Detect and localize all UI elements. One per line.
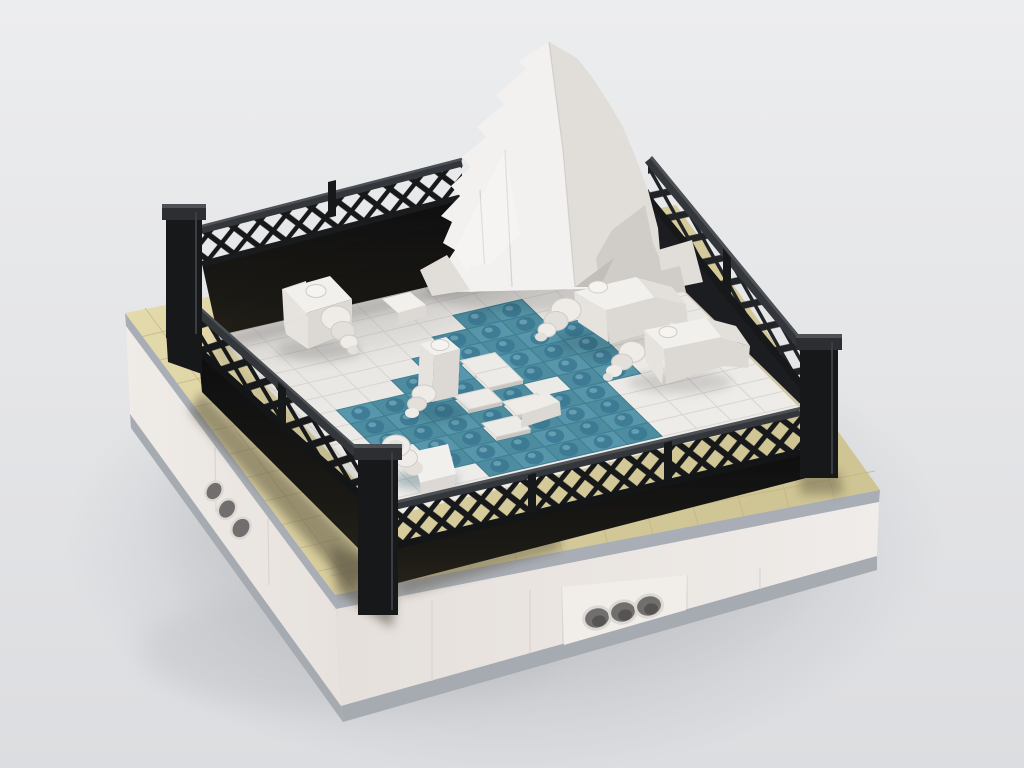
seal-stud <box>659 327 677 338</box>
seal-stud <box>431 340 449 351</box>
water-stud <box>566 407 585 421</box>
water-stud-highlight <box>589 388 597 393</box>
water-stud-highlight <box>575 374 583 379</box>
corner-post-east <box>796 334 842 478</box>
water-stud <box>462 431 481 445</box>
lego-scene-svg <box>0 0 1024 768</box>
water-stud <box>545 429 564 443</box>
water-stud <box>558 358 577 372</box>
water-stud <box>386 398 405 412</box>
water-stud-highlight <box>458 385 466 390</box>
water-stud <box>559 443 578 457</box>
water-stud-highlight <box>528 453 536 458</box>
water-stud <box>351 406 370 420</box>
water-stud-highlight <box>527 369 535 374</box>
water-stud-highlight <box>547 347 555 352</box>
seal-stud <box>306 285 326 298</box>
water-stud-highlight <box>485 327 493 332</box>
corner-post-west <box>162 204 206 374</box>
water-stud <box>510 352 529 366</box>
water-stud <box>600 399 619 413</box>
water-stud-highlight <box>409 379 417 384</box>
water-stud-highlight <box>479 447 487 452</box>
fence-divider <box>664 441 672 481</box>
water-stud <box>586 385 605 399</box>
water-stud-highlight <box>506 390 514 395</box>
water-stud <box>594 435 613 449</box>
water-stud-highlight <box>450 335 458 340</box>
water-stud-highlight <box>597 437 605 442</box>
fence-divider <box>528 473 536 513</box>
water-stud <box>580 421 599 435</box>
corner-post-south <box>354 444 402 615</box>
water-stud-highlight <box>389 401 397 406</box>
water-stud <box>482 325 501 339</box>
water-stud <box>490 459 509 473</box>
lego-render-figure <box>0 0 1024 768</box>
water-stud-highlight <box>562 445 570 450</box>
seal-stud <box>589 281 608 293</box>
water-stud-highlight <box>519 319 527 324</box>
water-stud <box>476 445 495 459</box>
fence-divider <box>278 382 286 425</box>
water-stud <box>614 413 633 427</box>
fence-divider <box>328 180 336 218</box>
water-stud <box>544 344 563 358</box>
water-stud <box>628 427 647 441</box>
water-stud <box>496 339 515 353</box>
water-stud <box>525 451 544 465</box>
water-stud-highlight <box>603 402 611 407</box>
water-stud-highlight <box>368 422 376 427</box>
water-stud-highlight <box>451 420 459 425</box>
water-stud-highlight <box>561 361 569 366</box>
water-stud-highlight <box>569 410 577 415</box>
water-stud-highlight <box>465 434 473 439</box>
water-stud <box>414 425 433 439</box>
water-stud-highlight <box>568 325 576 330</box>
water-stud-highlight <box>548 431 556 436</box>
water-stud-highlight <box>431 442 439 447</box>
water-stud-highlight <box>464 349 472 354</box>
water-stud <box>516 317 535 331</box>
water-stud-highlight <box>354 409 362 414</box>
water-stud-highlight <box>493 461 501 466</box>
water-stud <box>524 366 543 380</box>
water-stud-highlight <box>417 428 425 433</box>
water-stud-highlight <box>617 415 625 420</box>
water-stud-highlight <box>631 429 639 434</box>
water-stud <box>511 437 530 451</box>
water-stud <box>572 372 591 386</box>
water-stud <box>365 420 384 434</box>
water-stud-highlight <box>486 412 494 417</box>
water-stud-highlight <box>583 423 591 428</box>
water-stud-highlight <box>499 341 507 346</box>
water-stud-highlight <box>513 355 521 360</box>
water-stud-highlight <box>514 439 522 444</box>
water-stud-highlight <box>471 314 479 319</box>
